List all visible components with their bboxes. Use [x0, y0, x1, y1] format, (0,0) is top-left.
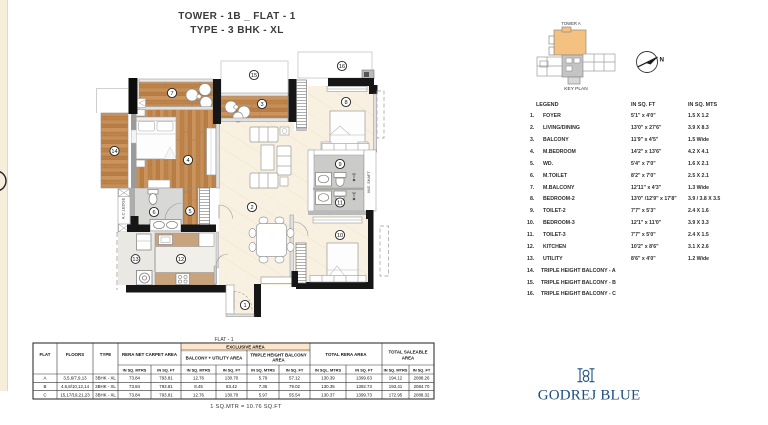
svg-text:9.: 9. — [530, 208, 535, 214]
svg-text:TOWER - 1B _ FLAT - 1: TOWER - 1B _ FLAT - 1 — [178, 11, 296, 22]
svg-text:1399.73: 1399.73 — [356, 393, 372, 398]
svg-text:4,6,8/10,12,14: 4,6,8/10,12,14 — [61, 384, 90, 389]
svg-text:A.C.LEDGE: A.C.LEDGE — [121, 198, 126, 220]
svg-text:M.TOILET: M.TOILET — [543, 173, 568, 179]
svg-text:IN SQ. FT: IN SQ. FT — [631, 102, 656, 108]
svg-text:73.84: 73.84 — [129, 384, 141, 389]
svg-text:12: 12 — [178, 257, 184, 263]
svg-text:57.12: 57.12 — [289, 376, 301, 381]
svg-text:130.35: 130.35 — [321, 384, 335, 389]
svg-text:IN SQ. MTRS: IN SQ. MTRS — [123, 368, 147, 373]
svg-text:A: A — [44, 376, 47, 381]
svg-text:TOTAL SALEABLE: TOTAL SALEABLE — [388, 350, 427, 355]
svg-text:UTILITY: UTILITY — [543, 256, 563, 262]
svg-text:2088.32: 2088.32 — [414, 393, 430, 398]
svg-text:IN SQ. FT: IN SQ. FT — [223, 368, 241, 373]
svg-text:10.: 10. — [527, 220, 535, 226]
svg-text:IN SQ. FT: IN SQ. FT — [286, 368, 304, 373]
svg-text:AREA: AREA — [272, 358, 285, 363]
svg-text:5'4" x 7'0": 5'4" x 7'0" — [631, 161, 656, 167]
svg-text:3.9 X 8.3: 3.9 X 8.3 — [688, 125, 709, 131]
svg-text:79.02: 79.02 — [289, 384, 301, 389]
svg-text:3BHK - XL: 3BHK - XL — [95, 393, 116, 398]
svg-text:8.: 8. — [530, 196, 535, 202]
svg-text:2.4 X 1.6: 2.4 X 1.6 — [688, 208, 709, 214]
svg-text:5.79: 5.79 — [259, 376, 268, 381]
svg-text:12'11" x 4'3": 12'11" x 4'3" — [631, 185, 662, 191]
svg-text:2.4 X 1.5: 2.4 X 1.5 — [688, 232, 709, 238]
svg-text:1.5 X 1.2: 1.5 X 1.2 — [688, 113, 709, 119]
svg-text:1.6 X 2.1: 1.6 X 2.1 — [688, 161, 709, 167]
svg-text:3.1 X 2.6: 3.1 X 2.6 — [688, 244, 709, 250]
svg-text:3,5,6/7,9,13: 3,5,6/7,9,13 — [63, 376, 87, 381]
svg-text:3BHK - XL: 3BHK - XL — [95, 384, 116, 389]
svg-text:1.3 Wide: 1.3 Wide — [688, 185, 709, 191]
svg-text:73.84: 73.84 — [129, 376, 141, 381]
svg-text:FLAT - 1: FLAT - 1 — [215, 337, 234, 343]
svg-text:IN SQ. MTRS: IN SQ. MTRS — [384, 368, 408, 373]
svg-text:TRIPLE HEIGHT BALCONY - A: TRIPLE HEIGHT BALCONY - A — [541, 268, 616, 274]
svg-text:2: 2 — [250, 205, 253, 211]
svg-text:8: 8 — [344, 100, 347, 106]
svg-text:55.54: 55.54 — [289, 393, 301, 398]
svg-text:130.70: 130.70 — [225, 376, 239, 381]
svg-text:793.81: 793.81 — [159, 384, 173, 389]
svg-text:IN SQL. MTRS: IN SQL. MTRS — [315, 368, 342, 373]
svg-text:1 SQ.MTR = 10.76 SQ.FT: 1 SQ.MTR = 10.76 SQ.FT — [210, 404, 282, 410]
svg-text:IN SQ. FT: IN SQ. FT — [355, 368, 373, 373]
svg-text:3BHK - XL: 3BHK - XL — [95, 376, 116, 381]
svg-text:4.: 4. — [530, 149, 535, 155]
svg-text:73.84: 73.84 — [129, 393, 141, 398]
svg-text:IN SQ. MTS: IN SQ. MTS — [688, 102, 717, 108]
svg-text:BEDROOM-2: BEDROOM-2 — [543, 196, 575, 202]
svg-text:M.BALCONY: M.BALCONY — [543, 185, 575, 191]
svg-text:7.35: 7.35 — [259, 384, 268, 389]
svg-text:8'6" x 4'0": 8'6" x 4'0" — [631, 256, 656, 262]
svg-text:IN SQ. FT: IN SQ. FT — [413, 368, 431, 373]
svg-text:14.: 14. — [527, 268, 535, 274]
svg-text:194.12: 194.12 — [389, 376, 403, 381]
svg-text:16: 16 — [339, 64, 345, 70]
svg-text:10: 10 — [337, 233, 343, 239]
svg-text:3.: 3. — [530, 137, 535, 143]
svg-text:5.: 5. — [530, 161, 535, 167]
svg-text:12.76: 12.76 — [193, 393, 205, 398]
svg-text:172.95: 172.95 — [389, 393, 403, 398]
svg-text:11: 11 — [337, 201, 343, 207]
svg-text:13.: 13. — [527, 256, 535, 262]
svg-text:TRIPLE HEIGHT BALCONY - B: TRIPLE HEIGHT BALCONY - B — [541, 280, 616, 286]
svg-text:TRIPLE HEIGHT BALCONY - C: TRIPLE HEIGHT BALCONY - C — [541, 291, 616, 297]
svg-text:1392.73: 1392.73 — [356, 384, 372, 389]
svg-text:1: 1 — [243, 303, 246, 309]
svg-text:C: C — [43, 393, 46, 398]
svg-text:13: 13 — [132, 257, 138, 263]
svg-text:83.42: 83.42 — [226, 384, 238, 389]
svg-text:2.: 2. — [530, 125, 535, 131]
svg-text:WD.: WD. — [543, 161, 554, 167]
svg-text:15,17/19,21,23: 15,17/19,21,23 — [60, 393, 90, 398]
svg-text:130.39: 130.39 — [321, 376, 335, 381]
svg-text:6.: 6. — [530, 173, 535, 179]
svg-text:1399.63: 1399.63 — [356, 376, 372, 381]
svg-text:M.BEDROOM: M.BEDROOM — [543, 149, 576, 155]
svg-text:1.: 1. — [530, 113, 535, 119]
svg-text:15: 15 — [251, 73, 257, 79]
svg-text:EXCLUSIVE AREA: EXCLUSIVE AREA — [226, 345, 265, 350]
svg-text:9: 9 — [338, 162, 341, 168]
svg-text:3.9 X 3.3: 3.9 X 3.3 — [688, 220, 709, 226]
svg-text:12.76: 12.76 — [193, 376, 205, 381]
svg-text:14'2" x 13'6": 14'2" x 13'6" — [631, 149, 662, 155]
svg-text:B: B — [44, 384, 47, 389]
svg-text:13'0" /12'9" x 17'8": 13'0" /12'9" x 17'8" — [631, 196, 677, 202]
svg-text:793.81: 793.81 — [159, 376, 173, 381]
svg-text:13'0" x 27'6": 13'0" x 27'6" — [631, 125, 662, 131]
svg-text:3: 3 — [260, 102, 263, 108]
svg-text:BALCONY: BALCONY — [543, 137, 569, 143]
svg-text:IN SQ. FT: IN SQ. FT — [157, 368, 175, 373]
svg-text:BALCONY + UTILITY AREA: BALCONY + UTILITY AREA — [186, 356, 243, 361]
svg-text:5: 5 — [188, 209, 191, 215]
svg-text:6: 6 — [152, 210, 155, 216]
svg-text:4: 4 — [186, 158, 189, 164]
svg-text:AREA: AREA — [402, 356, 415, 361]
svg-text:7.: 7. — [530, 185, 535, 191]
svg-text:TYPE - 3 BHK - XL: TYPE - 3 BHK - XL — [190, 25, 283, 36]
svg-text:130.37: 130.37 — [321, 393, 335, 398]
svg-text:10'2" x 8'6": 10'2" x 8'6" — [631, 244, 659, 250]
svg-text:130.70: 130.70 — [225, 393, 239, 398]
svg-text:TOWER A: TOWER A — [561, 21, 580, 26]
svg-text:5'1" x 4'0": 5'1" x 4'0" — [631, 113, 656, 119]
svg-text:BEDROOM-3: BEDROOM-3 — [543, 220, 575, 226]
svg-text:RERA NET CARPET AREA: RERA NET CARPET AREA — [122, 352, 178, 357]
svg-text:FOYER: FOYER — [543, 113, 561, 119]
svg-text:M.E. SHAFT: M.E. SHAFT — [367, 171, 371, 193]
svg-text:N: N — [660, 57, 665, 64]
svg-text:7'7" x 5'0": 7'7" x 5'0" — [631, 232, 656, 238]
svg-text:8'2" x 7'0": 8'2" x 7'0" — [631, 173, 656, 179]
svg-text:TOILET-3: TOILET-3 — [543, 232, 566, 238]
svg-text:7: 7 — [170, 91, 173, 97]
svg-text:11.: 11. — [527, 232, 534, 238]
svg-text:5.97: 5.97 — [259, 393, 268, 398]
svg-text:7'7" x 5'3": 7'7" x 5'3" — [631, 208, 656, 214]
svg-text:LIVING/DINING: LIVING/DINING — [543, 125, 580, 131]
svg-text:14: 14 — [111, 149, 117, 155]
svg-text:2088.26: 2088.26 — [414, 376, 430, 381]
svg-text:8.45: 8.45 — [194, 384, 203, 389]
svg-text:TYPE: TYPE — [100, 352, 112, 357]
svg-text:LEGEND: LEGEND — [536, 102, 559, 108]
svg-text:KITCHEN: KITCHEN — [543, 244, 566, 250]
svg-text:4.2 X 4.1: 4.2 X 4.1 — [688, 149, 709, 155]
svg-text:193.41: 193.41 — [389, 384, 403, 389]
svg-text:FLOORS: FLOORS — [66, 352, 84, 357]
svg-text:1.5 Wide: 1.5 Wide — [688, 137, 709, 143]
svg-text:12'1" x 11'0": 12'1" x 11'0" — [631, 220, 662, 226]
svg-text:1.2 Wide: 1.2 Wide — [688, 256, 709, 262]
svg-text:3.9 / 3.8 X 3.5: 3.9 / 3.8 X 3.5 — [688, 196, 720, 202]
svg-text:793.81: 793.81 — [159, 393, 173, 398]
svg-text:11'9" x 4'5": 11'9" x 4'5" — [631, 137, 659, 143]
svg-text:12.: 12. — [527, 244, 535, 250]
svg-text:2084.70: 2084.70 — [414, 384, 430, 389]
svg-text:FLAT: FLAT — [40, 352, 51, 357]
svg-text:2.5 X 2.1: 2.5 X 2.1 — [688, 173, 709, 179]
svg-text:16.: 16. — [527, 291, 535, 297]
svg-text:TOILET-2: TOILET-2 — [543, 208, 566, 214]
svg-text:IN SQ. MTRS: IN SQ. MTRS — [187, 368, 211, 373]
svg-text:TOTAL RERA AREA: TOTAL RERA AREA — [325, 352, 367, 357]
svg-text:GODREJ BLUE: GODREJ BLUE — [538, 388, 641, 404]
svg-text:KEY PLAN: KEY PLAN — [564, 86, 588, 92]
svg-text:IN SQ. MTRS: IN SQ. MTRS — [251, 368, 275, 373]
svg-text:15.: 15. — [527, 280, 535, 286]
